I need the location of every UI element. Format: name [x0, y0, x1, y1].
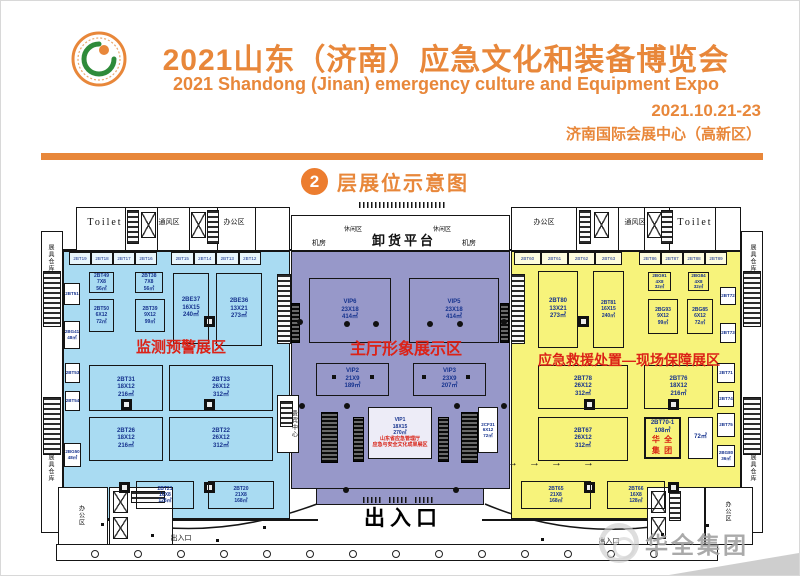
booth-2BT38: 2BT387X856㎡	[135, 272, 163, 293]
booth-2BT66: 2BT6616X8128㎡	[607, 481, 665, 509]
booth-2BG91: 2BG914X832㎡	[648, 272, 671, 291]
booth-cell-2BT15: 2BT15	[171, 252, 194, 265]
direction-arrow: →	[507, 457, 518, 469]
elevator-icon	[113, 491, 128, 513]
stairs	[579, 210, 591, 244]
booth-2BG93: 2BG939X1299㎡	[648, 299, 678, 334]
stairs	[661, 210, 673, 244]
booth-2BT51: 2BT51	[64, 283, 80, 305]
stairs-zone-boundary	[511, 274, 525, 344]
booth-2BT49: 2BT497X856㎡	[89, 272, 114, 293]
unloading-dock-label: 卸货平台	[369, 231, 439, 249]
booth-72㎡: 72㎡	[688, 417, 713, 459]
entrance-door	[363, 497, 381, 503]
exit-main-label: 出入口	[361, 505, 445, 531]
booth-2BE37: 2BE3716X15240㎡	[173, 273, 209, 344]
toilet-left-label: Toilet	[84, 212, 126, 234]
zone-label-main-hall: 主厅形象展示区	[345, 342, 467, 359]
wall-divider	[189, 207, 190, 251]
booth-2BT70-1: 2BT70-1108㎡华 全集 团	[644, 417, 681, 459]
dock-door	[359, 202, 447, 208]
corridor-column	[521, 550, 529, 558]
expo-venue: 济南国际会展中心（高新区）	[441, 123, 761, 144]
booth-2BT31: 2BT3118X12216㎡	[89, 365, 163, 411]
column-dot	[344, 403, 350, 409]
booth-2BT20: 2BT2021X8168㎡	[208, 481, 274, 509]
corridor-column	[220, 550, 228, 558]
booth-2BT75: 2BT75	[717, 413, 735, 437]
entrance-door	[415, 497, 433, 503]
expo-floorplan-poster: 2021山东（济南）应急文化和装备博览会 2021 Shandong (Jina…	[0, 0, 800, 576]
column-dot	[453, 487, 459, 493]
booth-2BT73: 2BT73	[720, 323, 736, 343]
booth-cell-2BT62: 2BT62	[568, 252, 595, 265]
office-top-right-label: 办公区	[525, 216, 563, 228]
pillar	[578, 316, 589, 327]
warehouse-left-bottom-label: 展具仓库	[43, 445, 57, 491]
vip-center-label: 贵宾中心	[289, 401, 298, 447]
booth-cell-2BT16: 2BT16	[135, 252, 157, 265]
machine-room-right-label: 机房	[458, 237, 480, 249]
booth-strip: 2BT862BT872BT882BT89	[639, 252, 727, 265]
office-top-left-label: 办公区	[215, 216, 253, 228]
floor-section-title: 层展位示意图	[337, 167, 469, 196]
booth-2BT53: 2BT53	[65, 363, 80, 383]
stairs-bottom-right	[669, 491, 681, 521]
booth-cell-2BT13: 2BT13	[216, 252, 239, 265]
booth-2BT67: 2BT6726X12312㎡	[538, 417, 628, 461]
exit-left-label: 出入口	[167, 533, 195, 543]
direction-arrow: →	[583, 457, 594, 469]
booth-cell-2BT87: 2BT87	[661, 252, 683, 265]
booth-2BT65: 2BT6521X8168㎡	[521, 481, 591, 509]
booth-2BT39: 2BT399X1299㎡	[135, 299, 165, 332]
elevator-icon	[113, 517, 128, 539]
warehouse-right-top-label: 展具仓库	[745, 235, 759, 281]
booth-cell-2BT86: 2BT86	[639, 252, 661, 265]
stairs	[127, 210, 139, 244]
elevator-icon	[594, 212, 609, 238]
booth-cell-2BT60: 2BT60	[514, 252, 541, 265]
column-dot	[343, 487, 349, 493]
stairs-zone-boundary	[277, 274, 291, 344]
booth-2BG84: 2BG844X832㎡	[688, 272, 709, 291]
column-dot	[501, 319, 507, 325]
facade-tick	[216, 539, 219, 542]
booth-2BT22: 2BT2226X12312㎡	[169, 417, 273, 461]
wall-divider	[644, 207, 645, 251]
warehouse-left-top-label: 展具仓库	[43, 235, 57, 281]
booth-2BT72: 2BT72	[720, 287, 736, 305]
corridor-column	[306, 550, 314, 558]
booth-VIP5: VIP523X18414㎡	[409, 278, 499, 343]
booth-cell-2BT63: 2BT63	[595, 252, 622, 265]
entrance-door	[389, 497, 407, 503]
booth-2BT54: 2BT54	[65, 391, 80, 411]
floor-section-header: 2 层展位示意图	[301, 167, 521, 196]
column-dot	[454, 403, 460, 409]
zone-label-rescue: 应急救援处置—现场保障展区	[523, 353, 735, 368]
booth-2BT21: 2BT2116X8128㎡	[136, 481, 194, 509]
booth-cell-2BT14: 2BT14	[194, 252, 217, 265]
booth-2BT76: 2BT7618X12216㎡	[644, 365, 713, 409]
booth-VIP3: VIP323X9207㎡	[413, 363, 486, 396]
corridor-column	[478, 550, 486, 558]
watermark: 华全集团	[599, 523, 749, 563]
column-dot	[299, 403, 305, 409]
wall-divider	[618, 207, 619, 251]
pillar	[668, 482, 679, 493]
expo-dates: 2021.10.21-23	[441, 101, 761, 121]
corridor-column	[134, 550, 142, 558]
booth-cell-2BT17: 2BT17	[113, 252, 135, 265]
corridor-column	[177, 550, 185, 558]
booth-2BG41: 2BG4148㎡	[64, 321, 80, 349]
column-dot	[501, 403, 507, 409]
wall-divider	[255, 207, 256, 251]
booth-cell-2BT12: 2BT12	[239, 252, 262, 265]
booth-2CF31: 2CF316X1272㎡	[478, 407, 498, 453]
warehouse-right-bottom-label: 展具仓库	[745, 445, 759, 491]
office-bottom-left-label: 办公区	[74, 493, 87, 537]
booth-strip: 2BT192BT182BT172BT16	[69, 252, 157, 265]
booth-cell-2BT88: 2BT88	[683, 252, 705, 265]
escalator	[461, 412, 478, 463]
booth-2BG85: 2BG856X1272㎡	[687, 299, 713, 334]
booth-strip: 2BT152BT142BT132BT12	[171, 252, 261, 265]
corridor-column	[263, 550, 271, 558]
corridor-column	[91, 550, 99, 558]
escalator	[321, 412, 338, 463]
wall-divider	[157, 207, 158, 251]
column-dot	[297, 319, 303, 325]
machine-room-left-label: 机房	[308, 237, 330, 249]
booth-2BT80: 2BT8013X21273㎡	[538, 271, 578, 348]
booth-2BT50: 2BT506X1272㎡	[89, 299, 114, 332]
booth-cell-2BT89: 2BT89	[705, 252, 727, 265]
expo-title-cn: 2021山东（济南）应急文化和装备博览会	[129, 35, 763, 79]
facade-tick	[263, 526, 266, 529]
pillar	[119, 482, 130, 493]
booth-2BT74: 2BT74	[718, 391, 734, 407]
booth-2BG80: 2BG8036㎡	[717, 445, 735, 467]
corridor-column	[435, 550, 443, 558]
direction-arrow: →	[529, 457, 540, 469]
corridor-column	[392, 550, 400, 558]
expo-logo-icon	[71, 31, 127, 87]
vent-right-label: 通风区	[619, 216, 651, 228]
booth-cell-2BT18: 2BT18	[91, 252, 113, 265]
booth-2BT78: 2BT7826X12312㎡	[538, 365, 628, 409]
wall-divider	[576, 207, 577, 251]
direction-arrow: →	[551, 457, 562, 469]
corridor-column	[349, 550, 357, 558]
booth-VIP6: VIP623X18414㎡	[309, 278, 391, 343]
booth-VIP2: VIP221X9189㎡	[316, 363, 389, 396]
booth-cell-2BT19: 2BT19	[69, 252, 91, 265]
expo-title-en: 2021 Shandong (Jinan) emergency culture …	[129, 74, 763, 95]
elevator-icon	[191, 212, 206, 238]
vent-left-label: 通风区	[153, 216, 185, 228]
floor-number-badge: 2	[301, 168, 328, 195]
zone-label-monitoring: 监测预警展区	[111, 340, 251, 356]
booth-2BE36: 2BE3613X21273㎡	[216, 273, 262, 346]
facade-tick	[151, 534, 154, 537]
booth-2BT26: 2BT2618X12216㎡	[89, 417, 163, 461]
facade-tick	[541, 538, 544, 541]
toilet-right-label: Toilet	[673, 212, 717, 234]
leisure-left-label: 休闲区	[340, 225, 366, 235]
booth-cell-2BT61: 2BT61	[541, 252, 568, 265]
watermark-logo-icon	[613, 537, 635, 559]
header-divider	[41, 153, 763, 160]
facade-tick	[101, 523, 104, 526]
booth-2BT81: 2BT8116X15240㎡	[593, 271, 624, 348]
escalator	[438, 417, 449, 462]
escalator	[353, 417, 364, 462]
booth-2BG50: 2BG5048㎡	[64, 443, 81, 467]
watermark-text: 华全集团	[645, 526, 749, 560]
booth-2BT33: 2BT3326X12312㎡	[169, 365, 273, 411]
corridor-column	[564, 550, 572, 558]
booth-strip: 2BT602BT612BT622BT63	[514, 252, 622, 265]
booth-VIP1: VIP118X15270㎡山东省应急管理厅应急与安全文化成果展区	[368, 407, 432, 459]
